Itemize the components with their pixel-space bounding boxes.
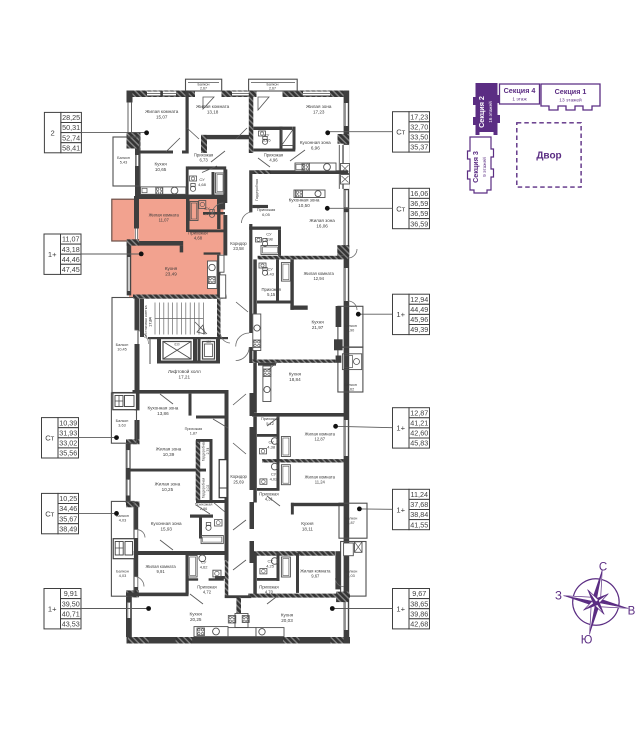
svg-text:41,55: 41,55: [410, 520, 428, 529]
svg-text:16 этажей: 16 этажей: [487, 101, 493, 123]
svg-text:44,46: 44,46: [62, 255, 80, 264]
svg-text:4,03: 4,03: [347, 574, 354, 578]
svg-text:Ст: Ст: [396, 204, 405, 213]
svg-text:3,94: 3,94: [203, 211, 212, 216]
svg-text:33,02: 33,02: [59, 439, 77, 448]
svg-text:С: С: [599, 562, 607, 574]
svg-text:17,23: 17,23: [410, 112, 428, 121]
svg-text:1+: 1+: [396, 605, 405, 614]
svg-text:1 этаж: 1 этаж: [512, 97, 527, 103]
svg-text:Гардеробная: Гардеробная: [202, 441, 206, 462]
svg-text:11,07: 11,07: [62, 235, 79, 244]
svg-text:630: 630: [174, 343, 180, 347]
svg-text:Ст: Ст: [396, 128, 405, 137]
svg-text:Секция 1: Секция 1: [555, 87, 587, 96]
svg-text:Жилая зона: Жилая зона: [156, 447, 182, 452]
svg-text:Жилая зона: Жилая зона: [309, 218, 335, 223]
svg-text:Ст: Ст: [45, 434, 54, 443]
svg-text:4,70: 4,70: [265, 590, 274, 595]
svg-text:6,05: 6,05: [262, 212, 271, 217]
svg-text:Кухня: Кухня: [190, 612, 203, 617]
svg-text:28,25: 28,25: [62, 113, 80, 122]
svg-text:37,68: 37,68: [410, 500, 428, 509]
svg-text:13 этажей: 13 этажей: [559, 97, 582, 104]
svg-text:Лифтовой холл: Лифтовой холл: [168, 368, 201, 374]
svg-text:16,06: 16,06: [410, 189, 428, 198]
svg-text:17,84: 17,84: [149, 317, 153, 327]
svg-text:Кухонная зона: Кухонная зона: [151, 521, 182, 526]
svg-text:38,49: 38,49: [59, 524, 77, 533]
svg-text:Ю: Ю: [581, 635, 593, 647]
svg-text:Кухонная зона: Кухонная зона: [300, 140, 331, 145]
svg-text:2: 2: [51, 128, 55, 137]
svg-text:10,50: 10,50: [298, 203, 310, 208]
svg-text:45,96: 45,96: [410, 315, 428, 324]
svg-text:2,02: 2,02: [206, 485, 210, 492]
svg-text:9,67: 9,67: [311, 574, 320, 579]
svg-text:Балкон: Балкон: [116, 570, 129, 574]
svg-text:58,41: 58,41: [62, 143, 80, 152]
svg-text:9,67: 9,67: [412, 589, 426, 598]
svg-text:15,07: 15,07: [156, 115, 168, 120]
svg-text:6,96: 6,96: [311, 146, 320, 151]
svg-text:33,50: 33,50: [410, 133, 428, 142]
svg-text:4,72: 4,72: [203, 590, 212, 595]
svg-text:Жилая комната: Жилая комната: [196, 104, 230, 109]
svg-text:Балкон: Балкон: [345, 517, 358, 521]
svg-text:23,49: 23,49: [165, 272, 177, 277]
svg-text:9 этажей: 9 этажей: [481, 157, 488, 177]
svg-text:Жилая комната: Жилая комната: [145, 109, 179, 114]
svg-text:Гардеробная: Гардеробная: [202, 478, 206, 499]
svg-text:4,43: 4,43: [266, 271, 275, 276]
svg-text:10,39: 10,39: [59, 418, 77, 427]
svg-text:З: З: [555, 591, 562, 603]
svg-text:4,25: 4,25: [266, 563, 275, 568]
svg-text:Кухня: Кухня: [281, 613, 294, 618]
svg-text:Кухня: Кухня: [165, 266, 178, 271]
svg-text:43,18: 43,18: [62, 245, 80, 254]
svg-text:11,24: 11,24: [411, 490, 428, 499]
svg-text:Секция 4: Секция 4: [504, 86, 536, 95]
svg-text:4,62: 4,62: [200, 564, 209, 569]
svg-text:4,03: 4,03: [119, 574, 126, 578]
svg-text:12,94: 12,94: [410, 295, 428, 304]
svg-text:Коридор: Коридор: [230, 474, 247, 479]
svg-text:1+: 1+: [396, 310, 405, 319]
svg-text:Кухонная зона: Кухонная зона: [147, 406, 178, 411]
svg-text:1,87: 1,87: [190, 431, 197, 435]
svg-text:45,83: 45,83: [410, 439, 428, 448]
svg-text:25,69: 25,69: [233, 479, 244, 484]
svg-text:10,25: 10,25: [59, 494, 77, 503]
svg-text:10,45: 10,45: [117, 348, 127, 352]
svg-text:Лестничная клетка: Лестничная клетка: [144, 304, 148, 338]
svg-text:9,91: 9,91: [157, 569, 166, 574]
svg-text:4,62: 4,62: [347, 388, 354, 392]
svg-text:1+: 1+: [396, 424, 405, 433]
svg-text:43,53: 43,53: [62, 620, 80, 629]
svg-text:Кухня: Кухня: [154, 162, 167, 167]
svg-text:50,31: 50,31: [62, 123, 80, 132]
svg-text:32,70: 32,70: [410, 123, 428, 132]
svg-text:36,59: 36,59: [410, 199, 428, 208]
svg-text:44,49: 44,49: [410, 305, 428, 314]
svg-text:3,98: 3,98: [265, 236, 274, 241]
svg-text:12,87: 12,87: [410, 408, 428, 417]
svg-text:Кухонная зона: Кухонная зона: [289, 198, 320, 203]
svg-text:38,65: 38,65: [410, 599, 428, 608]
svg-text:20,03: 20,03: [281, 618, 293, 623]
svg-text:49,39: 49,39: [410, 325, 428, 334]
svg-text:Ст: Ст: [45, 509, 54, 518]
svg-text:Балкон: Балкон: [116, 343, 129, 347]
svg-text:1+: 1+: [396, 505, 405, 514]
svg-text:35,56: 35,56: [59, 449, 77, 458]
svg-text:4,68: 4,68: [198, 182, 207, 187]
svg-text:10,65: 10,65: [155, 167, 167, 172]
svg-text:4,96: 4,96: [269, 158, 278, 163]
svg-text:2,74: 2,74: [206, 448, 210, 455]
svg-text:1+: 1+: [48, 250, 57, 259]
svg-text:6,73: 6,73: [200, 158, 209, 163]
svg-text:3,87: 3,87: [347, 521, 354, 525]
svg-text:16,06: 16,06: [316, 224, 328, 229]
svg-text:3,55: 3,55: [263, 137, 272, 142]
svg-text:В: В: [628, 606, 636, 618]
svg-text:Кухня: Кухня: [289, 372, 302, 377]
svg-text:11,24: 11,24: [315, 480, 326, 485]
svg-text:5,43: 5,43: [120, 161, 127, 165]
svg-text:52,74: 52,74: [62, 133, 80, 142]
svg-text:17,21: 17,21: [179, 375, 191, 380]
svg-text:Балкон: Балкон: [344, 324, 357, 328]
svg-text:35,37: 35,37: [410, 143, 428, 152]
svg-text:42,60: 42,60: [410, 429, 428, 438]
svg-text:47,45: 47,45: [62, 265, 80, 274]
svg-text:Прихожая: Прихожая: [185, 427, 203, 431]
svg-text:Балкон: Балкон: [117, 156, 130, 160]
svg-text:39,86: 39,86: [410, 609, 428, 618]
svg-text:2,67: 2,67: [200, 87, 207, 91]
svg-text:Жилая зона: Жилая зона: [155, 482, 181, 487]
svg-text:31,93: 31,93: [59, 428, 77, 437]
svg-text:3,63: 3,63: [118, 424, 125, 428]
svg-text:12,87: 12,87: [315, 437, 326, 442]
svg-text:Секция 2: Секция 2: [477, 96, 486, 128]
svg-text:41,21: 41,21: [410, 419, 428, 428]
svg-text:4,68: 4,68: [194, 236, 203, 241]
svg-text:21,97: 21,97: [312, 325, 324, 330]
svg-text:12,94: 12,94: [313, 276, 324, 281]
svg-text:36,59: 36,59: [410, 219, 428, 228]
svg-text:11,07: 11,07: [159, 218, 170, 223]
svg-text:4,02: 4,02: [270, 476, 279, 481]
svg-text:Кухня: Кухня: [301, 521, 314, 526]
svg-text:34,46: 34,46: [59, 504, 77, 513]
svg-text:4,90: 4,90: [347, 329, 354, 333]
svg-text:480: 480: [206, 340, 212, 344]
svg-text:4,38: 4,38: [267, 444, 276, 449]
svg-text:35,67: 35,67: [59, 514, 77, 523]
svg-text:36,59: 36,59: [410, 209, 428, 218]
svg-text:5,15: 5,15: [267, 292, 276, 297]
svg-text:18,11: 18,11: [302, 527, 314, 532]
svg-text:1+: 1+: [48, 605, 57, 614]
svg-text:Жилая зона: Жилая зона: [306, 104, 332, 109]
svg-text:2,67: 2,67: [269, 87, 276, 91]
svg-text:10,39: 10,39: [163, 452, 175, 457]
svg-text:Балкон: Балкон: [116, 419, 129, 423]
svg-text:15,93: 15,93: [160, 527, 172, 532]
svg-text:Балкон: Балкон: [345, 570, 358, 574]
svg-text:38,84: 38,84: [410, 510, 428, 519]
svg-text:20,25: 20,25: [190, 617, 202, 622]
svg-text:Балкон: Балкон: [344, 383, 357, 387]
svg-text:17,23: 17,23: [313, 110, 325, 115]
svg-text:13,18: 13,18: [207, 110, 219, 115]
svg-text:18,84: 18,84: [289, 377, 301, 382]
svg-text:10,25: 10,25: [162, 487, 174, 492]
svg-text:Кухня: Кухня: [311, 320, 324, 325]
svg-text:42,68: 42,68: [410, 620, 428, 629]
svg-text:40,71: 40,71: [62, 609, 80, 618]
svg-text:39,50: 39,50: [62, 599, 80, 608]
svg-text:13,86: 13,86: [157, 411, 169, 416]
svg-text:Гардеробная: Гардеробная: [255, 179, 259, 201]
svg-text:Двор: Двор: [536, 151, 561, 162]
svg-text:Секция 3: Секция 3: [471, 151, 480, 183]
svg-text:9,91: 9,91: [64, 589, 78, 598]
svg-text:23,58: 23,58: [233, 246, 244, 251]
svg-text:4,03: 4,03: [119, 519, 126, 523]
